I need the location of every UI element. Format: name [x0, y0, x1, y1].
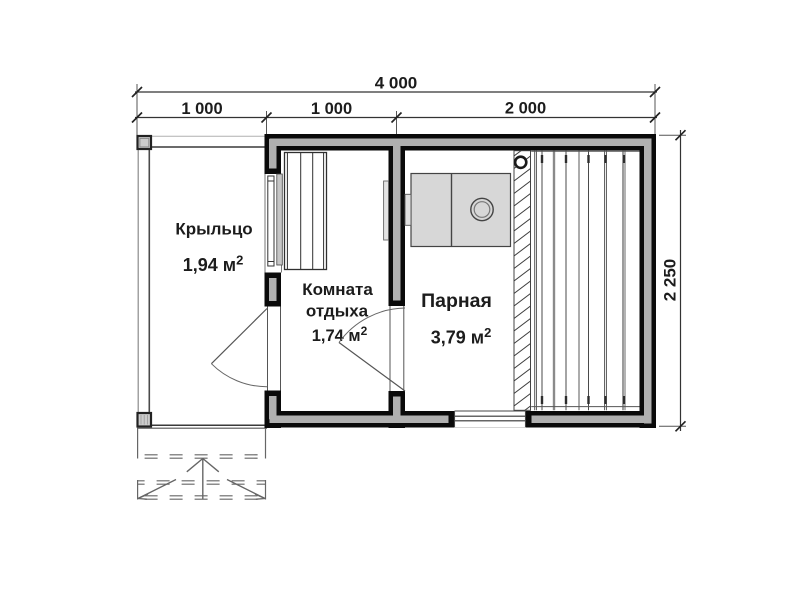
- svg-text:2 000: 2 000: [505, 100, 546, 118]
- svg-text:1 000: 1 000: [181, 100, 222, 118]
- svg-text:Крыльцо: Крыльцо: [175, 220, 252, 239]
- svg-text:Парная: Парная: [421, 290, 492, 312]
- svg-text:1,94 м2: 1,94 м2: [183, 253, 244, 276]
- svg-text:4 000: 4 000: [375, 74, 418, 93]
- svg-text:2 250: 2 250: [661, 259, 680, 302]
- svg-text:1 000: 1 000: [311, 100, 352, 118]
- svg-text:Комната: Комната: [302, 280, 373, 299]
- svg-text:3,79 м2: 3,79 м2: [431, 325, 492, 348]
- svg-text:отдыха: отдыха: [306, 302, 369, 321]
